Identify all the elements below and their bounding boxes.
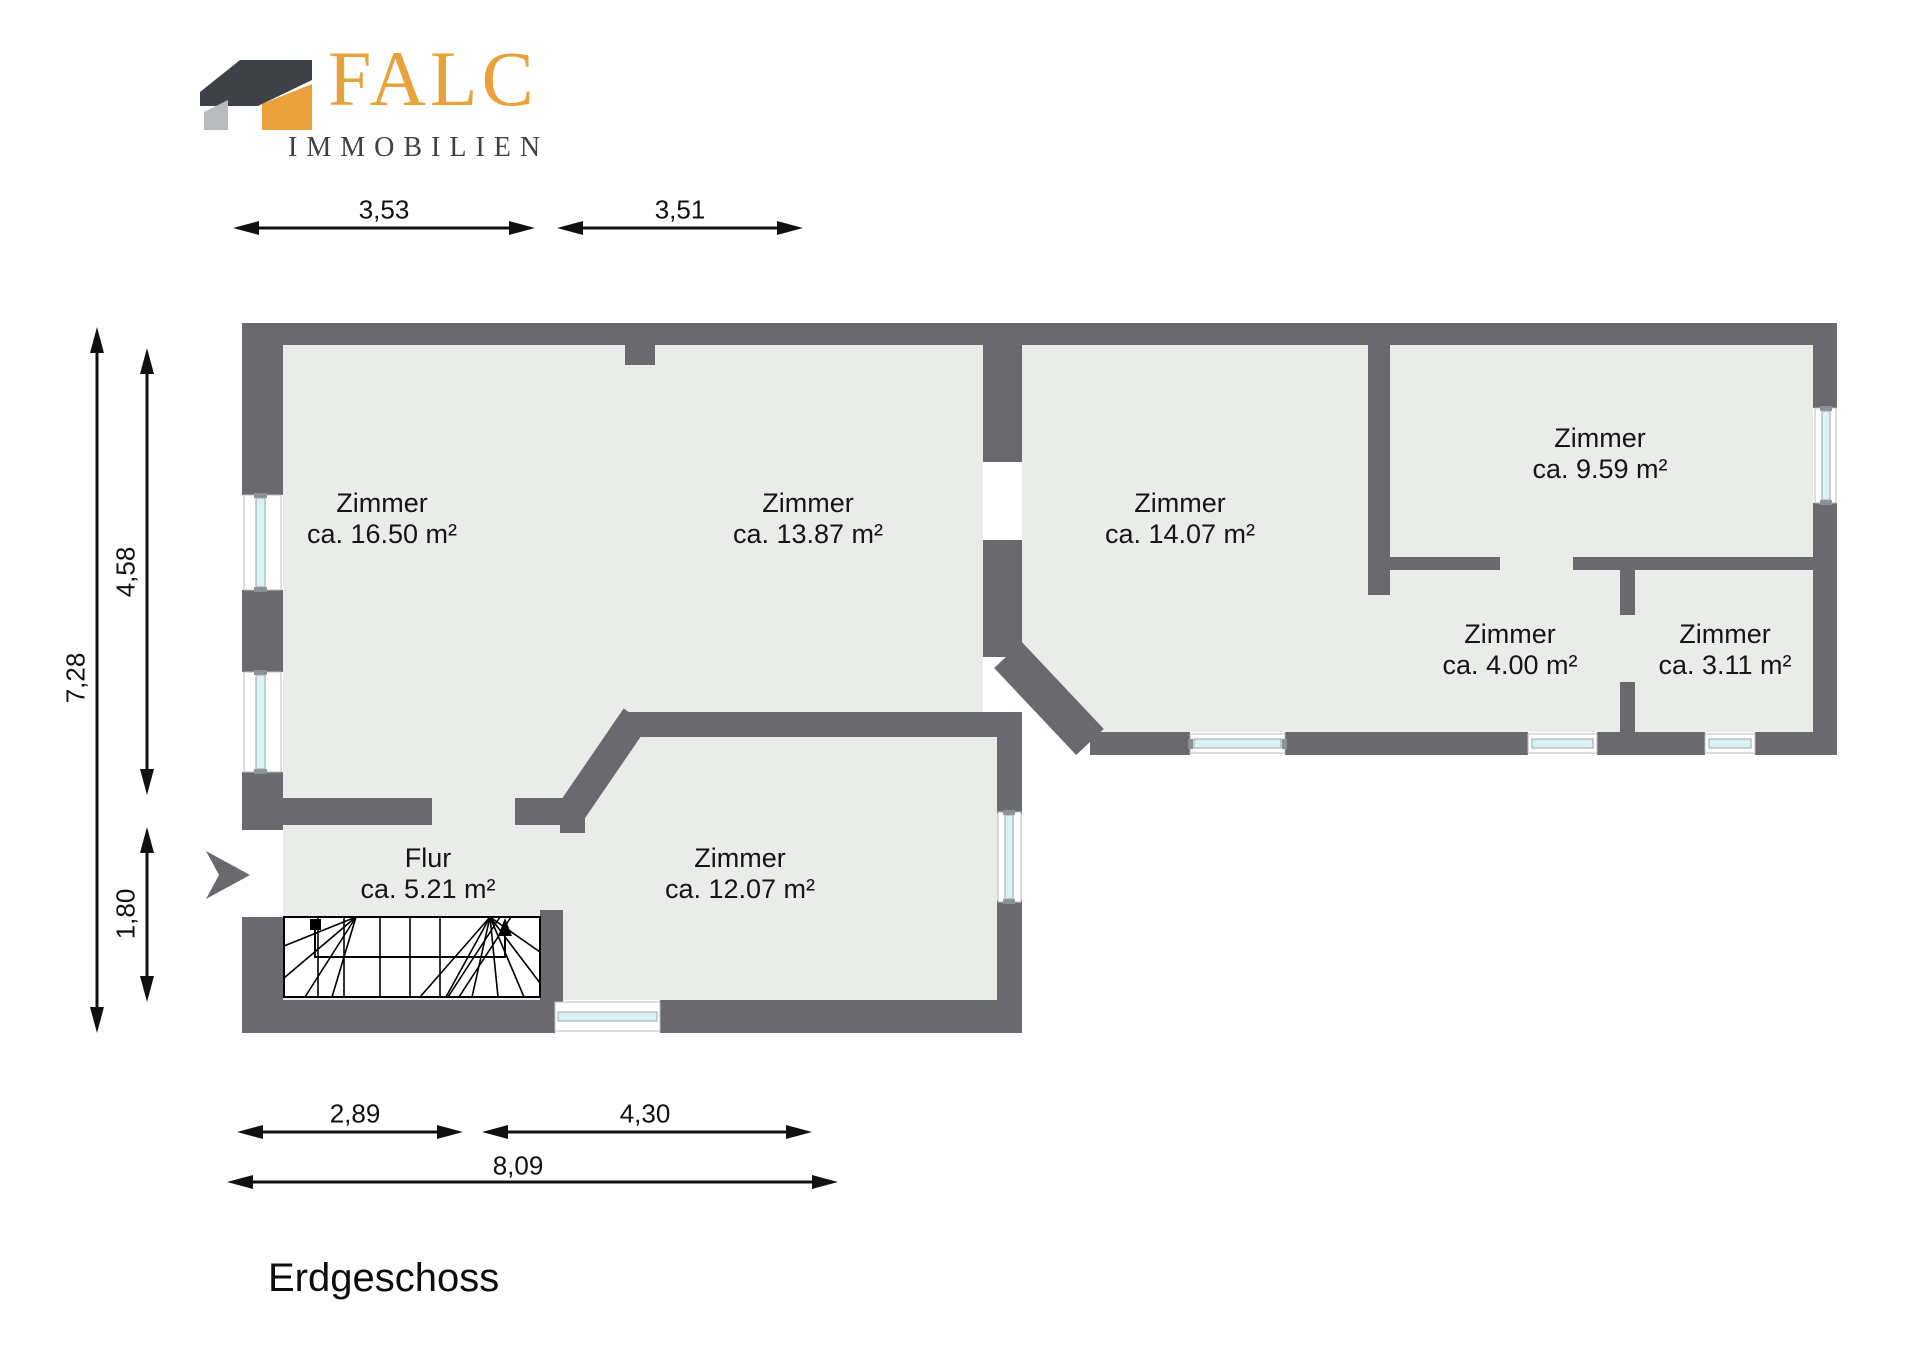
room-name: Zimmer (1532, 423, 1667, 454)
dim-bottom-total: 8,09 (493, 1151, 544, 1182)
room-label-zimmer-12-07: Zimmer ca. 12.07 m² (665, 843, 815, 905)
room-area: ca. 4.00 m² (1442, 650, 1577, 681)
room-label-zimmer-16-50: Zimmer ca. 16.50 m² (307, 488, 457, 550)
room-area: ca. 9.59 m² (1532, 454, 1667, 485)
room-name: Zimmer (1658, 619, 1791, 650)
room-name: Zimmer (1105, 488, 1255, 519)
floor-plan-page: FALC IMMOBILIEN (0, 0, 1920, 1357)
dim-side-upper: 4,58 (111, 547, 142, 598)
window-bottom-room4 (1528, 734, 1597, 753)
room-area: ca. 13.87 m² (733, 519, 883, 550)
room-area: ca. 5.21 m² (360, 874, 495, 905)
window-bottom-room12 (555, 1002, 660, 1031)
room-label-zimmer-13-87: Zimmer ca. 13.87 m² (733, 488, 883, 550)
window-right-wall (1815, 406, 1836, 505)
window-bottom-room3 (1705, 734, 1755, 753)
room-name: Zimmer (1442, 619, 1577, 650)
window-left-lower (244, 670, 281, 774)
room-name: Flur (360, 843, 495, 874)
window-room12-right (998, 810, 1021, 904)
dim-top-left: 3,53 (359, 195, 410, 226)
room-label-zimmer-3-11: Zimmer ca. 3.11 m² (1658, 619, 1791, 681)
room-area: ca. 12.07 m² (665, 874, 815, 905)
entrance-arrow-icon (206, 851, 250, 899)
staircase (284, 917, 540, 997)
room-label-zimmer-4-00: Zimmer ca. 4.00 m² (1442, 619, 1577, 681)
floor-plan-drawing (0, 0, 1920, 1357)
room-name: Zimmer (665, 843, 815, 874)
room-name: Zimmer (733, 488, 883, 519)
dim-bottom-left: 2,89 (330, 1099, 381, 1130)
room-name: Zimmer (307, 488, 457, 519)
dim-bottom-right: 4,30 (620, 1099, 671, 1130)
room-area: ca. 16.50 m² (307, 519, 457, 550)
dim-side-total: 7,28 (61, 653, 92, 704)
room-label-zimmer-9-59: Zimmer ca. 9.59 m² (1532, 423, 1667, 485)
room-area: ca. 3.11 m² (1658, 650, 1791, 681)
dim-top-right: 3,51 (655, 195, 706, 226)
page-title: Erdgeschoss (268, 1256, 499, 1301)
room-label-zimmer-14-07: Zimmer ca. 14.07 m² (1105, 488, 1255, 550)
window-bottom-room14 (1188, 734, 1287, 753)
window-left-upper (244, 493, 281, 592)
room-area: ca. 14.07 m² (1105, 519, 1255, 550)
dim-side-lower: 1,80 (111, 889, 142, 940)
room-label-flur: Flur ca. 5.21 m² (360, 843, 495, 905)
